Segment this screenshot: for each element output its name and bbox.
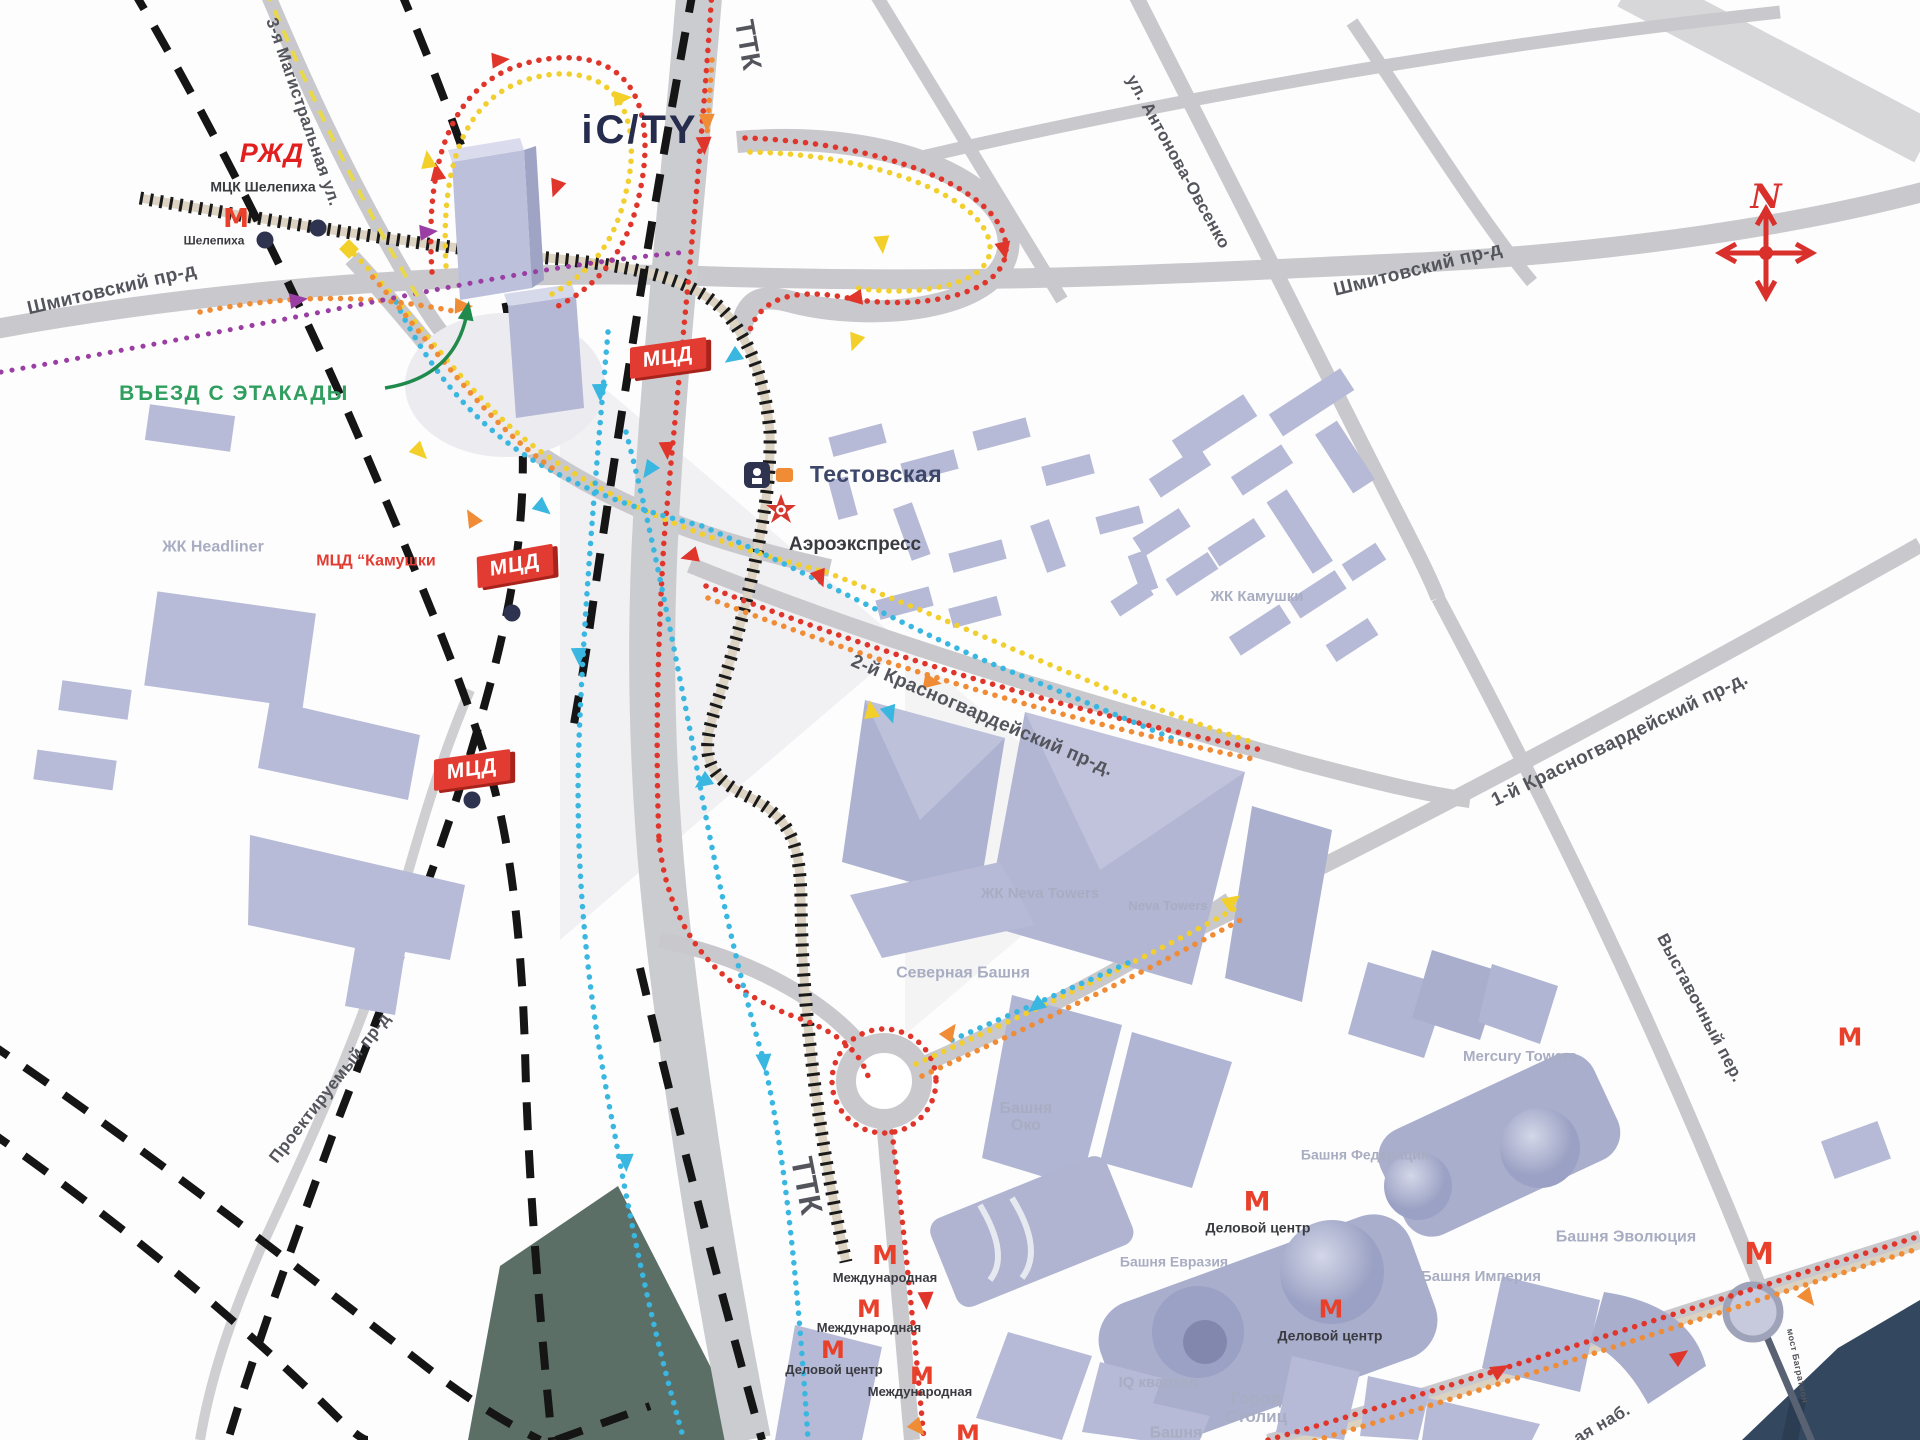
map-graphics: [0, 0, 1920, 1440]
transit-map: Шмитовский пр-дШмитовский пр-д3-я Магист…: [0, 0, 1920, 1440]
testovskaya-station-icon: [744, 462, 793, 488]
